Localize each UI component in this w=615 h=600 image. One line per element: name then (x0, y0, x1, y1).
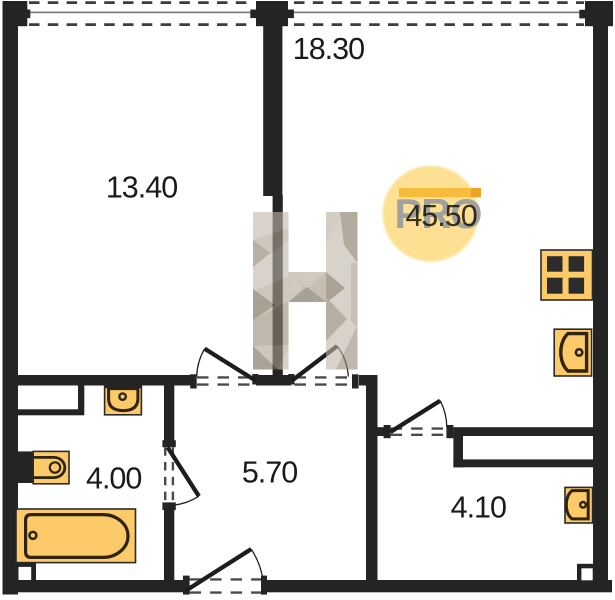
svg-text:18.30: 18.30 (293, 32, 364, 66)
svg-text:13.40: 13.40 (106, 171, 177, 205)
svg-text:45.50: 45.50 (405, 199, 476, 233)
svg-text:4.00: 4.00 (86, 462, 141, 496)
svg-text:4.10: 4.10 (451, 491, 506, 525)
svg-text:5.70: 5.70 (242, 456, 297, 490)
